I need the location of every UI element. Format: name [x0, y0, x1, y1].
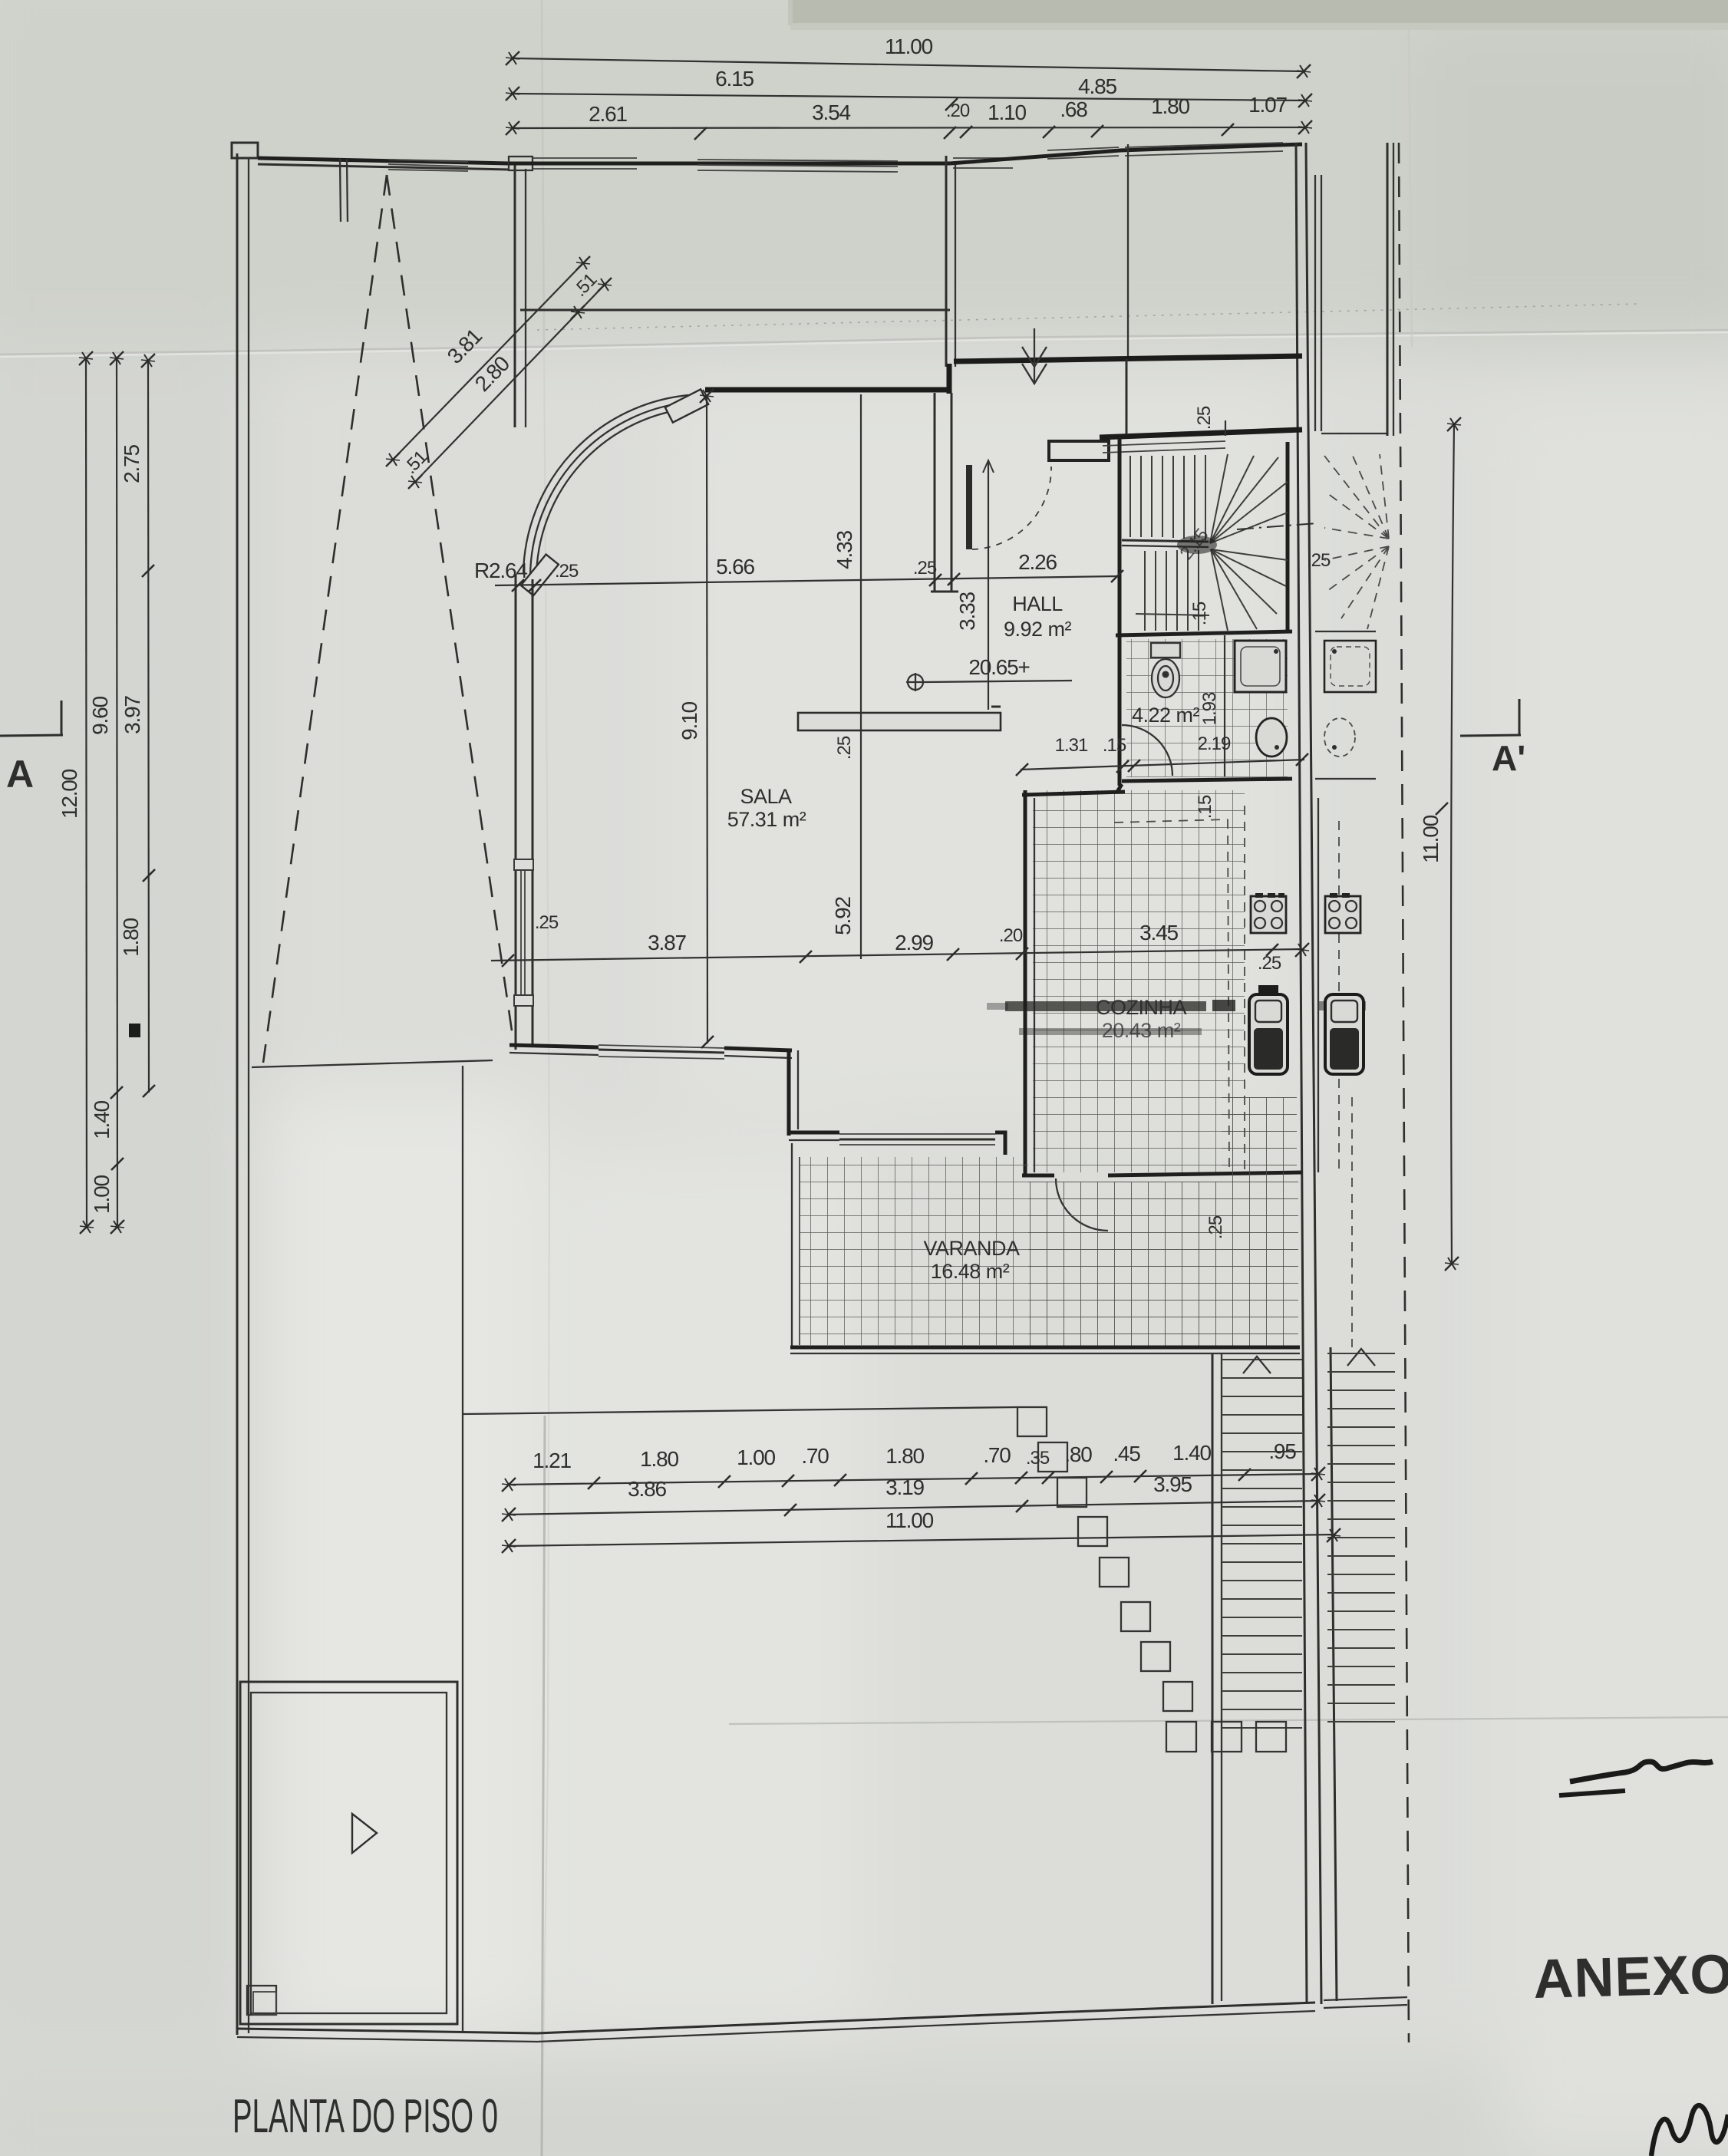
- svg-text:.80: .80: [1064, 1442, 1092, 1466]
- svg-text:6.15: 6.15: [715, 67, 754, 91]
- svg-text:57.31 m²: 57.31 m²: [727, 808, 806, 831]
- svg-text:.25: .25: [1194, 406, 1215, 430]
- svg-text:.25: .25: [1205, 1215, 1226, 1239]
- svg-text:1.00: 1.00: [90, 1175, 114, 1214]
- svg-text:1.40: 1.40: [1172, 1441, 1211, 1465]
- svg-text:3.97: 3.97: [120, 696, 144, 734]
- svg-text:5.92: 5.92: [831, 897, 855, 935]
- svg-text:.45: .45: [1113, 1442, 1140, 1465]
- svg-text:3.19: 3.19: [885, 1475, 924, 1499]
- svg-text:1.10: 1.10: [988, 101, 1026, 124]
- svg-text:1.93: 1.93: [1199, 692, 1220, 725]
- svg-text:3.86: 3.86: [628, 1477, 666, 1501]
- svg-text:9.92 m²: 9.92 m²: [1004, 618, 1072, 641]
- svg-text:1.80: 1.80: [1151, 94, 1189, 118]
- svg-text:3.33: 3.33: [955, 592, 979, 631]
- svg-text:2.61: 2.61: [589, 102, 627, 126]
- svg-text:20.43 m²: 20.43 m²: [1102, 1019, 1181, 1042]
- svg-text:1.21: 1.21: [533, 1449, 571, 1472]
- svg-text:3.87: 3.87: [648, 931, 686, 954]
- svg-text:4.85: 4.85: [1078, 74, 1116, 98]
- svg-text:3.95: 3.95: [1153, 1472, 1192, 1496]
- svg-text:ANEXO: ANEXO: [1532, 1943, 1728, 2010]
- svg-text:A': A': [1492, 738, 1525, 778]
- svg-text:.68: .68: [1060, 97, 1087, 121]
- svg-text:R2.64: R2.64: [474, 559, 527, 582]
- svg-text:20.65+: 20.65+: [968, 655, 1029, 679]
- svg-text:2.26: 2.26: [1018, 550, 1057, 574]
- svg-text:VARANDA: VARANDA: [923, 1237, 1020, 1260]
- svg-text:PLANTA DO PISO 0: PLANTA DO PISO 0: [232, 2090, 498, 2143]
- svg-text:5.66: 5.66: [716, 555, 754, 579]
- svg-text:.25: .25: [1258, 953, 1281, 974]
- svg-text:.15: .15: [1195, 795, 1215, 819]
- svg-text:.25: .25: [913, 558, 937, 579]
- svg-text:12.00: 12.00: [58, 769, 81, 819]
- svg-text:16.48 m²: 16.48 m²: [931, 1260, 1010, 1283]
- svg-text:11.00: 11.00: [1419, 815, 1443, 863]
- svg-text:3.45: 3.45: [1139, 921, 1178, 944]
- svg-text:.25: .25: [555, 561, 579, 582]
- svg-text:.70: .70: [801, 1444, 829, 1468]
- svg-text:.25: .25: [535, 912, 559, 933]
- svg-text:11.00: 11.00: [885, 35, 933, 58]
- svg-text:.15: .15: [1189, 602, 1210, 625]
- svg-text:9.10: 9.10: [678, 702, 701, 740]
- svg-text:.20: .20: [999, 925, 1023, 946]
- svg-text:COZINHA: COZINHA: [1096, 996, 1186, 1019]
- svg-text:2.99: 2.99: [895, 931, 933, 954]
- svg-text:2.19: 2.19: [1198, 734, 1231, 754]
- svg-text:.25: .25: [1307, 550, 1331, 571]
- svg-text:.95: .95: [1268, 1439, 1296, 1463]
- svg-text:1.31: 1.31: [1055, 735, 1088, 756]
- svg-text:11.00: 11.00: [885, 1508, 934, 1532]
- svg-text:1.07: 1.07: [1248, 93, 1287, 117]
- svg-text:1.00: 1.00: [737, 1446, 775, 1469]
- svg-text:2.75: 2.75: [120, 445, 143, 483]
- svg-text:.20: .20: [946, 101, 970, 121]
- svg-text:.15: .15: [1103, 735, 1126, 756]
- svg-text:.25: .25: [834, 736, 855, 760]
- svg-text:1.80: 1.80: [640, 1447, 678, 1471]
- svg-text:.70: .70: [983, 1443, 1011, 1467]
- svg-text:1.80: 1.80: [119, 918, 143, 957]
- svg-text:1.80: 1.80: [885, 1444, 924, 1468]
- svg-text:1.40: 1.40: [90, 1101, 114, 1139]
- svg-text:4.22 m²: 4.22 m²: [1132, 704, 1200, 727]
- svg-text:9.60: 9.60: [88, 697, 112, 735]
- svg-text:.35: .35: [1026, 1448, 1050, 1469]
- svg-text:HALL: HALL: [1012, 592, 1063, 615]
- svg-text:4.33: 4.33: [833, 531, 856, 569]
- svg-text:A: A: [6, 753, 34, 796]
- svg-text:3.54: 3.54: [812, 101, 850, 124]
- svg-text:SALA: SALA: [740, 785, 792, 808]
